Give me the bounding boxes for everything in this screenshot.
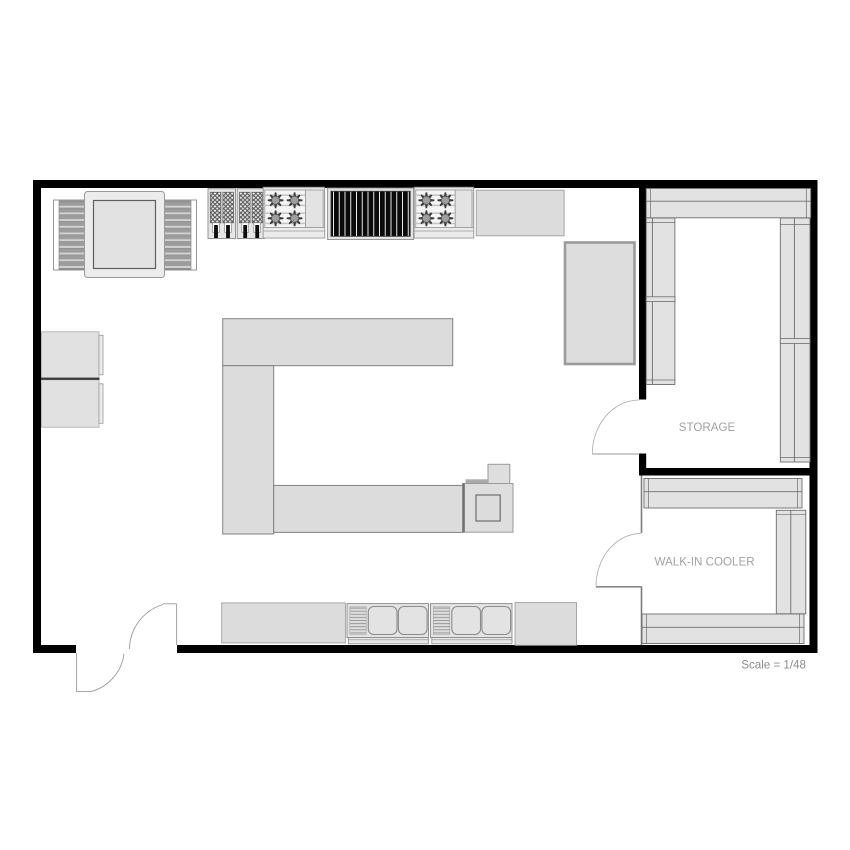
- svg-text:STORAGE: STORAGE: [679, 421, 736, 434]
- svg-text:Scale = 1/48: Scale = 1/48: [741, 658, 806, 671]
- svg-text:WALK-IN COOLER: WALK-IN COOLER: [655, 555, 755, 568]
